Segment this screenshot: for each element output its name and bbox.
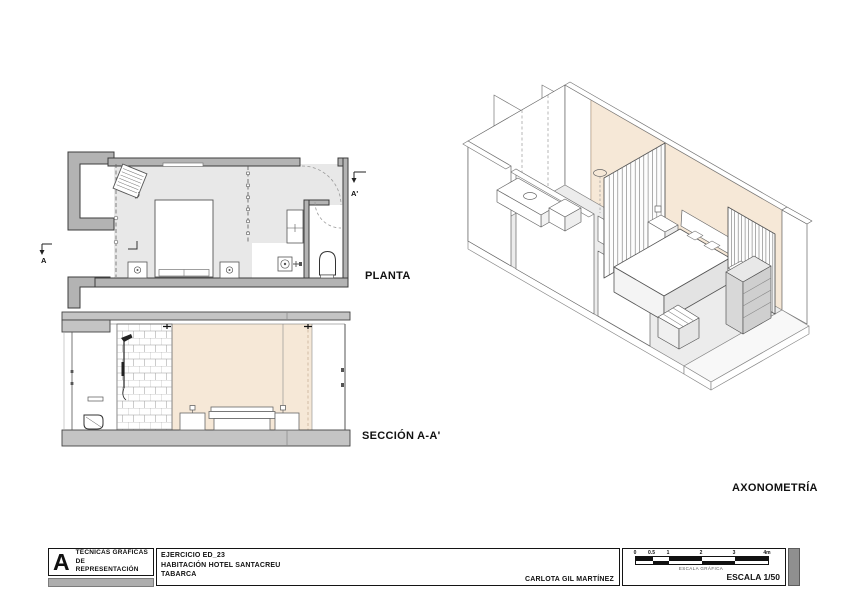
scale-tick-0: 0 [634,550,637,556]
section-balustrade [64,332,73,430]
plan-title: PLANTA [365,270,411,282]
scale-tick-1: 1 [667,550,670,556]
title-block-project-info: EJERCICIO ED_23 HABITACIÓN HOTEL SANTACR… [156,548,620,586]
author-name: CARLOTA GIL MARTÍNEZ [525,576,614,583]
axon-balcony-wall [782,207,812,324]
scale-tick-3: 3 [733,550,736,556]
plan-nightstand-left [128,262,147,278]
scale-label: ESCALA 1/50 [726,572,780,582]
section-mark-a-prime: A' [351,189,358,198]
plan-nightstand-right [220,262,239,278]
plan-shelf [163,163,203,167]
floor-plan-drawing [38,150,373,308]
plan-toilet [320,252,336,279]
section-toilet [84,397,103,429]
axonometric-title: AXONOMETRÍA [732,482,818,494]
section-right-wall [341,324,345,430]
title-block-end-cap [788,548,800,586]
project-label: HABITACIÓN HOTEL SANTACREU [161,561,615,571]
title-block-scale: 0 0.5 1 2 3 4m ESCALA GRÁFICA ESCALA 1/5… [622,548,786,586]
section-bed [209,407,275,430]
axonometric-drawing [450,55,814,510]
plan-wardrobe [287,210,303,243]
section-mark-a: A [41,256,46,265]
scale-tick-4m: 4m [763,550,770,556]
drawing-sheet: A A' PLANTA [0,0,848,600]
title-block-logo: A TÉCNICAS GRÁFICAS DE REPRESENTACIÓN [48,548,154,576]
section-drawing [62,312,358,448]
plan-bed [155,200,213,277]
scale-tick-05: 0.5 [648,550,655,556]
logo-letter: A [53,551,70,573]
exercise-label: EJERCICIO ED_23 [161,551,615,561]
section-title: SECCIÓN A-A' [362,430,441,442]
course-line-2: DE REPRESENTACIÓN [76,558,149,576]
title-block: A TÉCNICAS GRÁFICAS DE REPRESENTACIÓN EJ… [48,548,800,586]
course-line-1: TÉCNICAS GRÁFICAS [76,549,149,558]
graphic-scale-bar [635,556,769,565]
section-slab-bottom [62,430,350,446]
title-block-gray-bar [48,578,154,587]
graphic-scale-caption: ESCALA GRÁFICA [635,566,767,571]
scale-tick-2: 2 [700,550,703,556]
